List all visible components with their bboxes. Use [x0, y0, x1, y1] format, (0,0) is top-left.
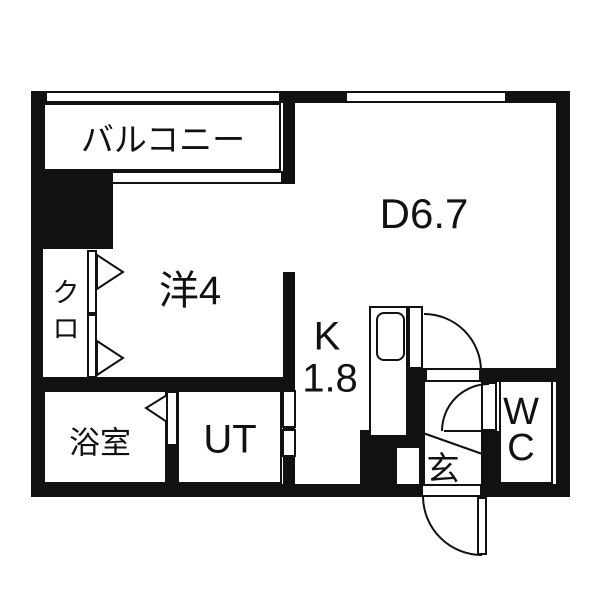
bathroom-label: 浴室 [69, 418, 131, 463]
floor-plan: バルコニー D6.7 洋4 ク ロ K 1.8 浴室 UT 玄 W C [0, 0, 600, 600]
closet-label-line1: ク [53, 275, 80, 311]
closet-door-triangle-upper [97, 255, 123, 289]
closet-door-panel-lower [87, 314, 97, 378]
bathroom-door-leaf [166, 391, 178, 446]
balcony-sliding-window [111, 171, 283, 184]
toilet-label-line1: W [503, 394, 539, 430]
wall-kitchen-entry [408, 368, 425, 431]
toilet-label-line2: C [503, 430, 539, 466]
entrance-door-arc [423, 497, 482, 555]
dining-top-window [345, 91, 507, 103]
closet-label: ク ロ [53, 275, 80, 347]
toilet-label: W C [503, 394, 539, 466]
wall-block-left [43, 168, 113, 249]
wall-left [31, 103, 43, 497]
balcony-label: バルコニー [81, 113, 245, 161]
kitchen-door-leaf [408, 306, 423, 369]
entry-shoe-cabinet [395, 446, 421, 486]
wall-toilet-left [481, 431, 499, 484]
utility-door-panel-lower [282, 429, 296, 457]
dining-label: D6.7 [380, 190, 469, 238]
entrance-door-leaf [477, 497, 487, 555]
western-room-label: 洋4 [159, 258, 221, 316]
kitchen-size-label: 1.8 [302, 357, 358, 402]
kitchen-door-arc [424, 314, 481, 371]
closet-door-triangle-lower [97, 341, 123, 375]
entrance-label: 玄 [427, 442, 460, 490]
kitchen-letter-label: K [314, 315, 341, 360]
closet-door-panel-upper [87, 250, 97, 314]
toilet-door-opening [481, 382, 497, 431]
wall-right [556, 103, 570, 497]
wall-western-bottom [43, 377, 283, 390]
kitchen-door-opening [425, 368, 481, 382]
kitchen-sink [376, 312, 405, 361]
utility-label: UT [203, 418, 256, 463]
closet-label-line2: ロ [53, 311, 80, 347]
wall-balcony-dining [283, 103, 295, 184]
balcony-top-window [45, 91, 281, 103]
utility-door-panel-upper [282, 390, 296, 428]
